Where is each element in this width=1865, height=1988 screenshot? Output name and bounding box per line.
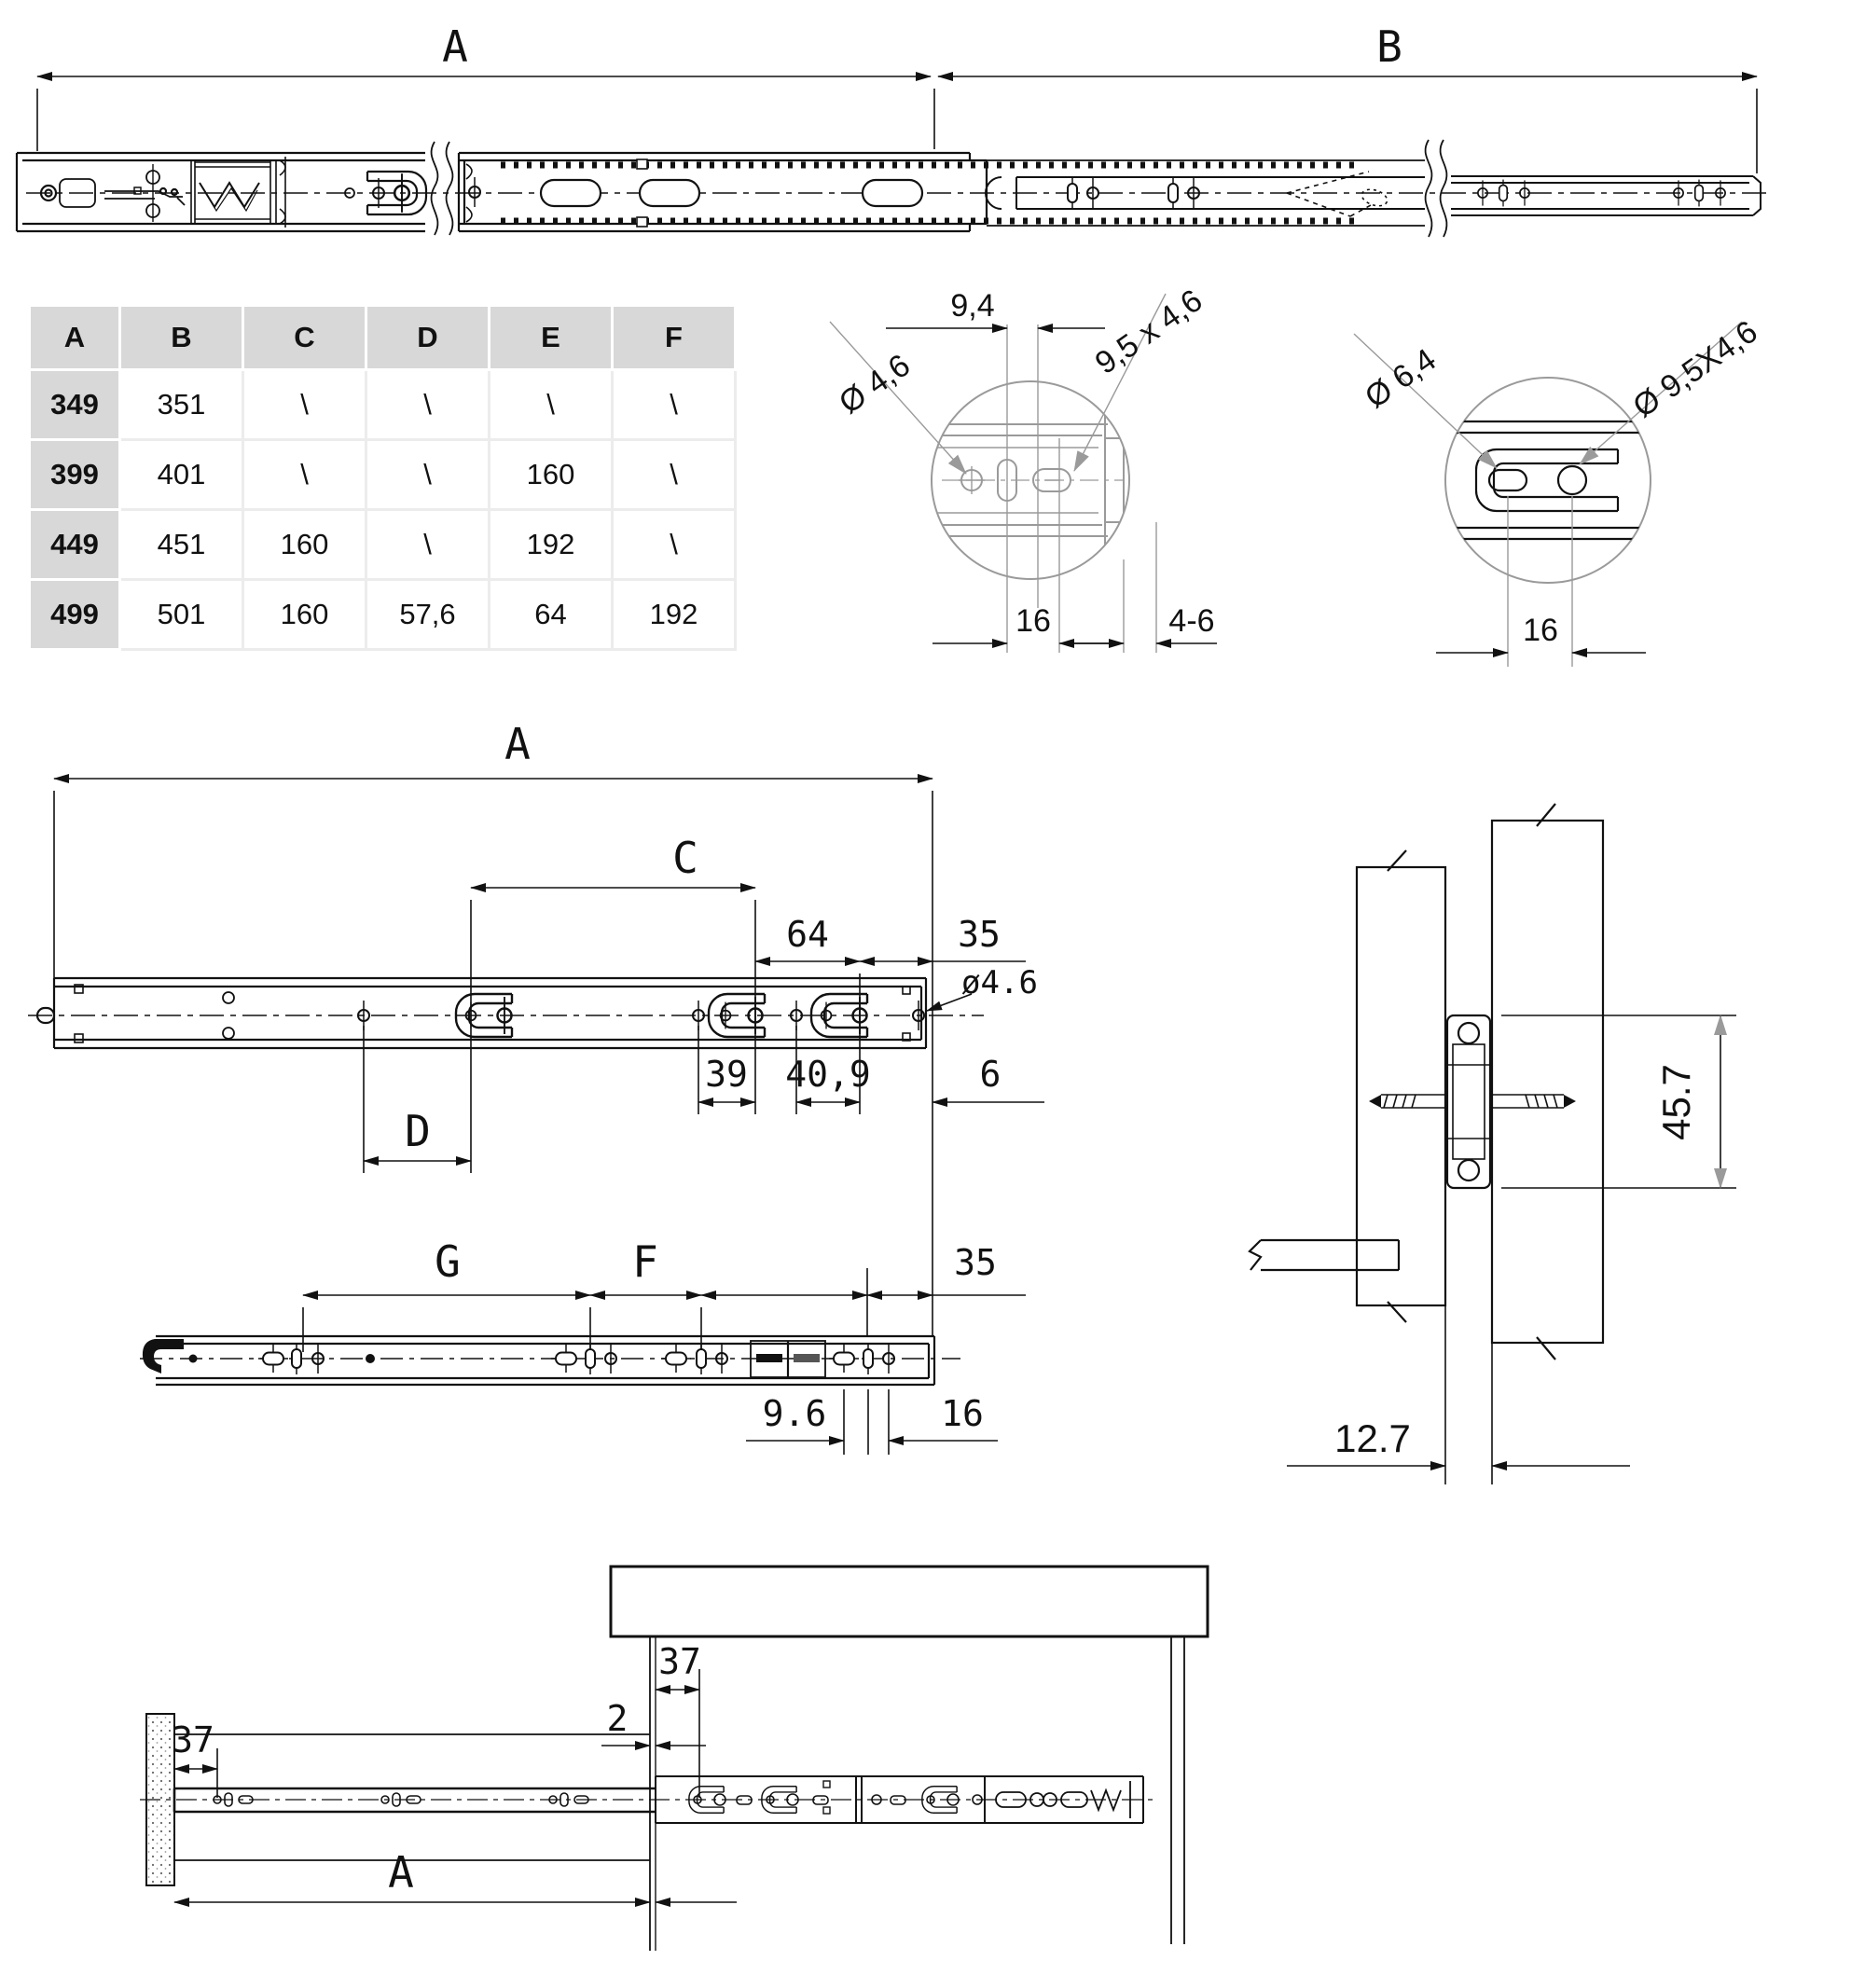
install-rear-offset-label: 37 (172, 1722, 214, 1758)
brand-mark (751, 1341, 825, 1377)
section-height-label: 45.7 (1657, 1064, 1696, 1140)
table-cell: 449 (30, 510, 120, 580)
top-view-drawing (17, 76, 1772, 237)
table-cell: 160 (243, 580, 366, 650)
table-cell: \ (366, 510, 490, 580)
front-hole-detail-drawing (830, 294, 1217, 653)
size-table: A B C D E F 349 351 \ \ \ \ 399 401 \ \ … (28, 304, 737, 651)
table-cell: \ (366, 440, 490, 510)
table-cell: 399 (30, 440, 120, 510)
section-offset-label: 12.7 (1334, 1419, 1411, 1458)
table-row: 499 501 160 57,6 64 192 (30, 580, 736, 650)
inner-member-drawing (140, 1268, 1026, 1455)
outer-dim-c-label: C (672, 836, 698, 879)
table-cell: \ (243, 440, 366, 510)
table-cell: 64 (490, 580, 613, 650)
table-row: 449 451 160 \ 192 \ (30, 510, 736, 580)
inner-dim-f-label: F (632, 1240, 658, 1283)
table-cell: 499 (30, 580, 120, 650)
table-cell: 349 (30, 370, 120, 440)
table-cell: 451 (120, 510, 243, 580)
table-cell: \ (613, 370, 736, 440)
technical-drawing (0, 0, 1865, 1988)
table-cell: \ (366, 370, 490, 440)
front-detail-thickness-label: 4-6 (1168, 605, 1214, 637)
table-cell: 160 (490, 440, 613, 510)
table-header: B (120, 306, 243, 370)
installation-drawing (140, 1567, 1208, 1951)
table-row: 399 401 \ \ 160 \ (30, 440, 736, 510)
outer-dim-6-label: 6 (980, 1056, 1002, 1092)
outer-dim-d-label: D (405, 1110, 431, 1153)
top-dim-a-label: A (442, 25, 468, 68)
table-cell: 401 (120, 440, 243, 510)
table-cell: 160 (243, 510, 366, 580)
outer-hole-label: ø4.6 (961, 967, 1038, 999)
install-dim-a-label: A (388, 1851, 414, 1894)
inner-dim-g-label: G (435, 1240, 461, 1283)
inner-dim-96-label: 9.6 (763, 1396, 827, 1431)
table-cell: \ (613, 440, 736, 510)
outer-member-drawing (28, 779, 1044, 1336)
cross-section-drawing (1250, 804, 1736, 1484)
inner-dim-35-label: 35 (954, 1245, 997, 1280)
front-detail-offset-label: 9,4 (950, 290, 994, 322)
outer-dim-35-label: 35 (958, 917, 1001, 952)
drawing-sheet: A B 9,4 Ø 4,6 9,5 x 4,6 16 4-6 Ø 6,4 Ø 9… (0, 0, 1865, 1988)
table-row: 349 351 \ \ \ \ (30, 370, 736, 440)
outer-dim-409-label: 40,9 (785, 1056, 871, 1092)
table-cell: 501 (120, 580, 243, 650)
table-header: F (613, 306, 736, 370)
front-detail-pitch-label: 16 (1015, 605, 1051, 637)
table-cell: 57,6 (366, 580, 490, 650)
table-header: D (366, 306, 490, 370)
rear-detail-pitch-label: 16 (1523, 614, 1558, 646)
table-cell: 351 (120, 370, 243, 440)
outer-dim-a-label: A (504, 723, 531, 766)
size-table-header-row: A B C D E F (30, 306, 736, 370)
top-dim-b-label: B (1376, 25, 1402, 68)
table-cell: \ (243, 370, 366, 440)
table-cell: 192 (613, 580, 736, 650)
table-cell: 192 (490, 510, 613, 580)
outer-dim-64-label: 64 (786, 917, 829, 952)
table-cell: \ (490, 370, 613, 440)
table-header: A (30, 306, 120, 370)
table-cell: \ (613, 510, 736, 580)
outer-dim-39-label: 39 (705, 1056, 748, 1092)
inner-dim-16-label: 16 (941, 1396, 984, 1431)
table-header: C (243, 306, 366, 370)
table-header: E (490, 306, 613, 370)
install-front-offset-label: 37 (658, 1644, 701, 1679)
install-gap-label: 2 (607, 1701, 629, 1736)
